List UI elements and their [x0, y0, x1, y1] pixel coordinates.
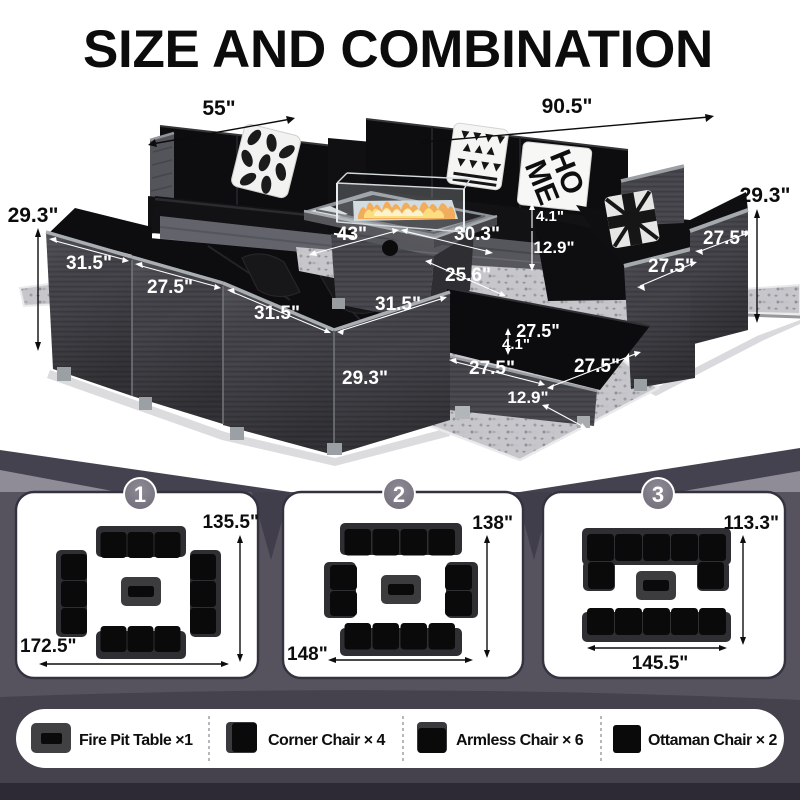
svg-text:27.5": 27.5" [574, 356, 620, 377]
svg-text:2: 2 [393, 482, 405, 507]
svg-text:SIZE AND COMBINATION: SIZE AND COMBINATION [83, 20, 713, 79]
svg-text:31.5": 31.5" [66, 253, 112, 274]
svg-text:12.9": 12.9" [533, 238, 574, 257]
svg-text:Corner Chair × 4: Corner Chair × 4 [268, 732, 386, 749]
svg-text:138": 138" [472, 513, 513, 534]
svg-text:90.5": 90.5" [542, 95, 593, 118]
svg-text:30.3": 30.3" [454, 224, 500, 245]
svg-text:172.5": 172.5" [20, 636, 77, 657]
svg-text:27.5": 27.5" [703, 228, 749, 249]
svg-text:12.9": 12.9" [507, 388, 548, 407]
svg-text:4.1": 4.1" [536, 208, 564, 225]
svg-text:29.3": 29.3" [8, 204, 59, 227]
svg-text:55": 55" [202, 97, 235, 120]
svg-text:145.5": 145.5" [632, 653, 689, 674]
svg-text:1: 1 [134, 482, 146, 507]
svg-text:29.3": 29.3" [342, 368, 388, 389]
svg-text:3: 3 [652, 482, 664, 507]
svg-text:43": 43" [337, 224, 367, 245]
svg-text:148": 148" [287, 644, 328, 665]
svg-text:135.5": 135.5" [202, 512, 259, 533]
svg-text:31.5": 31.5" [375, 294, 421, 315]
svg-text:Armless Chair × 6: Armless Chair × 6 [456, 732, 584, 749]
svg-text:Fire Pit Table ×1: Fire Pit Table ×1 [79, 732, 193, 749]
svg-text:29.3": 29.3" [740, 184, 791, 207]
svg-text:31.5": 31.5" [254, 303, 300, 324]
svg-text:113.3": 113.3" [723, 513, 779, 534]
svg-text:Ottaman Chair × 2: Ottaman Chair × 2 [648, 732, 777, 749]
svg-text:27.5": 27.5" [147, 277, 193, 298]
svg-text:25.6": 25.6" [445, 265, 491, 286]
